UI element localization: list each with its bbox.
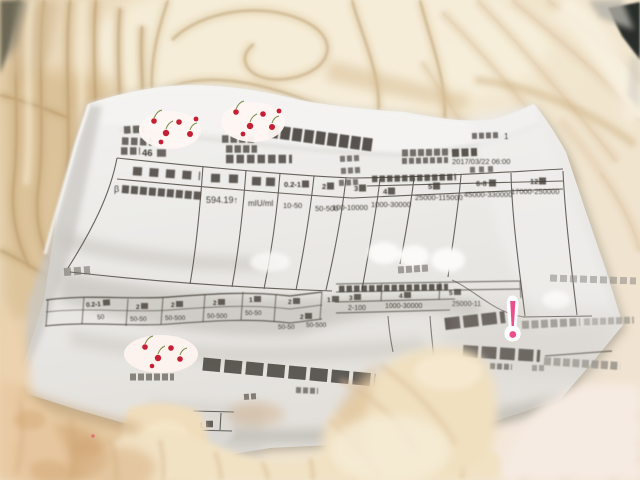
svg-text:10-50: 10-50 [283, 201, 302, 210]
svg-text:2: 2 [171, 302, 175, 309]
svg-text:3: 3 [354, 184, 358, 193]
svg-text:3: 3 [349, 295, 353, 302]
svg-text:0.2-1: 0.2-1 [284, 180, 301, 189]
svg-text:12: 12 [530, 177, 538, 186]
svg-text:0.2-1: 0.2-1 [86, 301, 102, 309]
svg-text:17000-250000: 17000-250000 [511, 187, 559, 196]
svg-text:50-50: 50-50 [130, 316, 147, 323]
svg-text:1000-30000: 1000-30000 [385, 303, 422, 310]
svg-text:50-50: 50-50 [245, 310, 262, 317]
svg-text:25000-115000: 25000-115000 [415, 193, 463, 202]
svg-text:2: 2 [300, 314, 304, 321]
svg-text:50-500: 50-500 [306, 322, 327, 329]
svg-text:5: 5 [449, 290, 453, 297]
svg-text:mIU/ml: mIU/ml [248, 199, 274, 208]
svg-text:1: 1 [327, 297, 331, 304]
svg-text:2: 2 [288, 299, 292, 306]
svg-text:4: 4 [399, 293, 403, 300]
svg-text:100-10000: 100-10000 [332, 203, 368, 212]
svg-text:50-50: 50-50 [278, 324, 295, 331]
svg-text:46: 46 [142, 148, 153, 159]
svg-text:2: 2 [213, 300, 217, 307]
svg-text:45000-330000: 45000-330000 [464, 190, 512, 199]
svg-text:2: 2 [136, 304, 140, 311]
svg-text:50-500: 50-500 [207, 313, 228, 320]
svg-text:6-8: 6-8 [476, 179, 487, 188]
svg-text:50: 50 [97, 314, 105, 322]
svg-text:1: 1 [249, 297, 253, 304]
svg-text:1000-30000: 1000-30000 [371, 200, 411, 209]
svg-text:2: 2 [322, 182, 326, 191]
svg-text:β: β [114, 184, 119, 194]
svg-text:50-500: 50-500 [165, 315, 186, 322]
svg-text:1: 1 [504, 132, 509, 141]
svg-text:594.19↑: 594.19↑ [206, 195, 238, 205]
svg-text:2-100: 2-100 [348, 305, 366, 312]
svg-text:5: 5 [428, 182, 432, 191]
svg-text:2017/03/22 06:00: 2017/03/22 06:00 [452, 157, 510, 166]
